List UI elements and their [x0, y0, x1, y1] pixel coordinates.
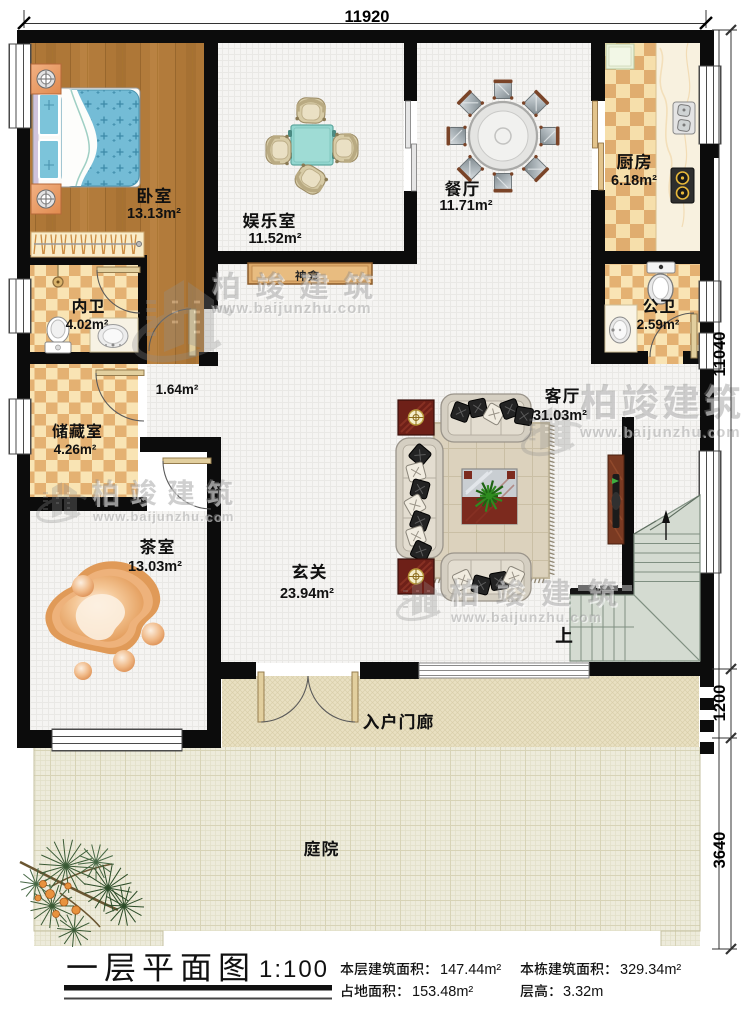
svg-text:329.34m²: 329.34m² [620, 962, 681, 978]
svg-text:13.03m²: 13.03m² [128, 559, 182, 575]
svg-text:147.44m²: 147.44m² [440, 962, 501, 978]
svg-text:1.64m²: 1.64m² [156, 382, 199, 397]
svg-text:www.baijunzhu.com: www.baijunzhu.com [450, 609, 602, 625]
svg-text:2.59m²: 2.59m² [637, 317, 680, 332]
svg-text:1:100: 1:100 [259, 956, 329, 983]
svg-text:13.13m²: 13.13m² [127, 206, 181, 222]
svg-text:3.32m: 3.32m [563, 984, 603, 1000]
svg-text:23.94m²: 23.94m² [280, 586, 334, 602]
svg-text:11.52m²: 11.52m² [248, 231, 301, 247]
svg-text:www.baijunzhu.com: www.baijunzhu.com [579, 424, 741, 441]
svg-text:1200: 1200 [711, 685, 729, 722]
svg-text:11920: 11920 [345, 8, 390, 26]
svg-text:11.71m²: 11.71m² [439, 198, 492, 214]
svg-text:4.26m²: 4.26m² [54, 442, 97, 457]
svg-text:3640: 3640 [711, 832, 729, 869]
svg-text:www.baijunzhu.com: www.baijunzhu.com [92, 509, 234, 524]
svg-text:4.02m²: 4.02m² [66, 317, 109, 332]
svg-text:6.18m²: 6.18m² [611, 173, 657, 189]
svg-text:11040: 11040 [711, 332, 729, 377]
svg-text:153.48m²: 153.48m² [412, 984, 473, 1000]
svg-text:www.baijunzhu.com: www.baijunzhu.com [210, 300, 372, 317]
svg-text:31.03m²: 31.03m² [533, 408, 587, 424]
